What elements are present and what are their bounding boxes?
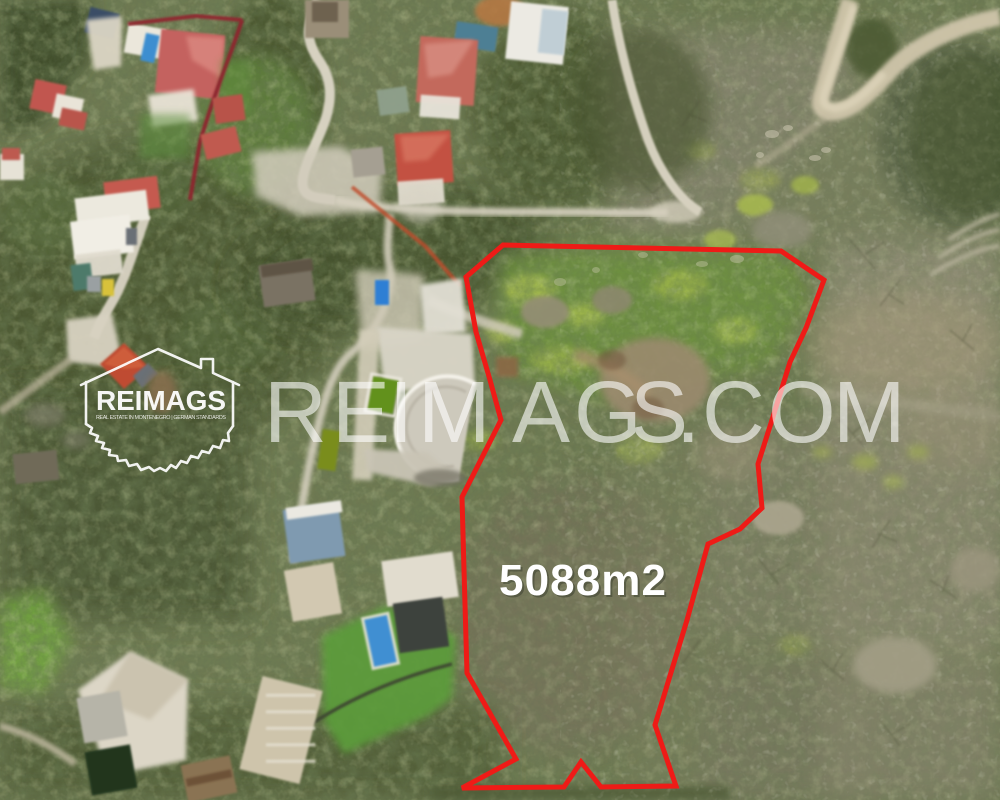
svg-text:REIMAGS.COM: REIMAGS.COM bbox=[264, 364, 905, 461]
svg-text:REAL ESTATE IN MONTENEGRO | GE: REAL ESTATE IN MONTENEGRO | GERMAN STAND… bbox=[96, 415, 226, 421]
svg-text:5088m2: 5088m2 bbox=[499, 556, 666, 605]
svg-text:REIMAGS: REIMAGS bbox=[96, 385, 226, 416]
